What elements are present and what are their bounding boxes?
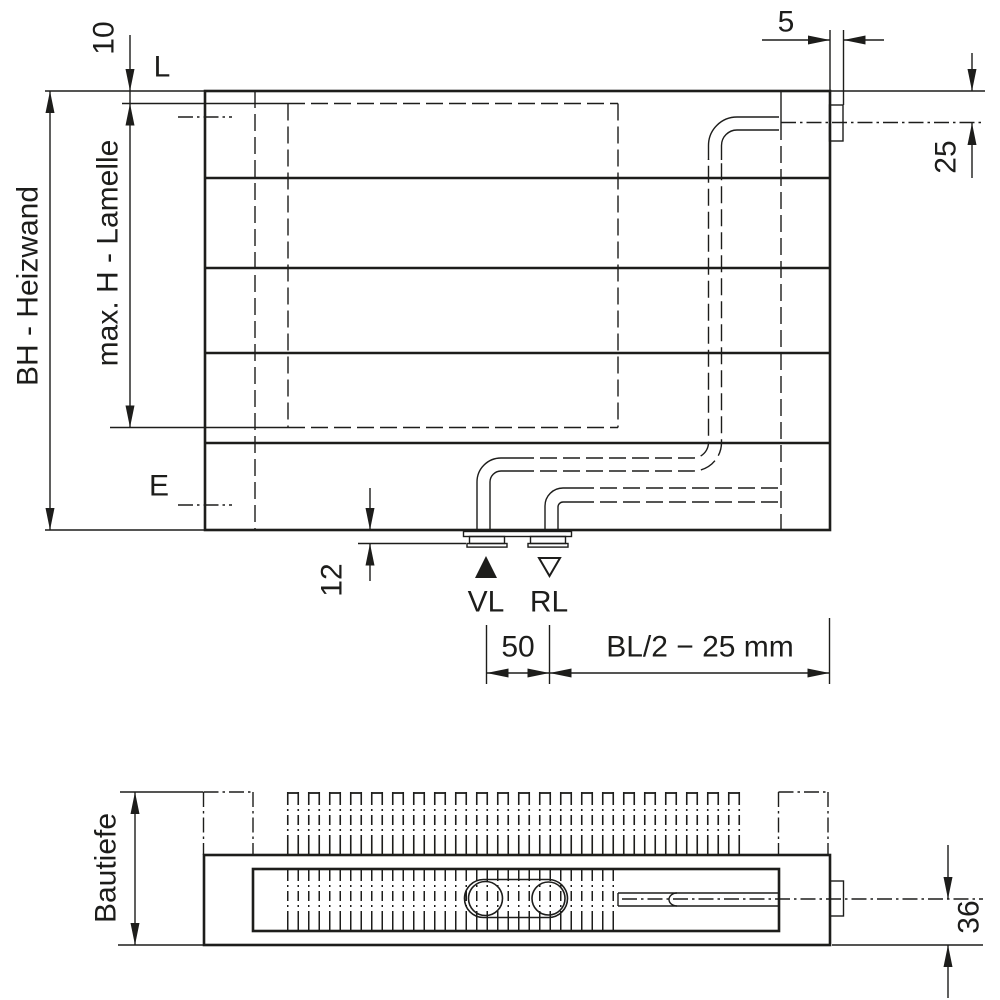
arrowhead	[126, 69, 135, 91]
arrowhead	[550, 669, 572, 678]
arrowhead	[46, 508, 55, 530]
dim-50-label: 50	[501, 631, 534, 664]
dim-5-label: 5	[778, 6, 795, 39]
arrowhead	[944, 877, 953, 899]
radiator-body-outline	[205, 91, 830, 530]
arrowhead	[808, 669, 830, 678]
arrowhead	[844, 36, 866, 45]
arrowhead	[131, 792, 140, 814]
connection-plate	[464, 532, 572, 537]
arrowhead	[808, 36, 830, 45]
drawing-canvas: 10 L BH - Heizwand max. H - Lamelle E 12…	[0, 0, 1000, 1000]
arrowhead	[944, 945, 953, 967]
bottom-view: Bautiefe 36	[90, 792, 986, 998]
convection-fins-top	[285, 792, 747, 855]
rl-connection-stub	[528, 537, 568, 548]
dim-bh-heizwand-label: BH - Heizwand	[12, 186, 45, 386]
connection-e-label: E	[149, 470, 169, 503]
arrowhead	[131, 923, 140, 945]
arrowhead	[126, 406, 135, 428]
arrowhead	[366, 544, 375, 566]
vl-connection-stub	[467, 537, 507, 548]
arrowhead	[126, 104, 135, 126]
dim-max-h-lamelle-label: max. H - Lamelle	[92, 140, 125, 367]
dim-bautiefe-label: Bautiefe	[90, 813, 123, 923]
lamella-max-extent-box	[288, 104, 618, 428]
front-view: 10 L BH - Heizwand max. H - Lamelle E 12…	[12, 6, 986, 685]
dim-36-label: 36	[953, 900, 986, 933]
dim-12-label: 12	[316, 563, 349, 596]
dim-bl2-label: BL/2 − 25 mm	[606, 631, 794, 664]
fin-extent-phantom-right	[779, 792, 829, 855]
water-channel	[618, 893, 983, 906]
rl-return-pipe	[545, 488, 778, 530]
arrowhead	[968, 123, 977, 145]
connection-l-label: L	[154, 51, 171, 84]
vl-flow-symbol	[475, 556, 497, 578]
dim-10-label: 10	[88, 21, 121, 54]
technical-drawing-radiator: 10 L BH - Heizwand max. H - Lamelle E 12…	[0, 0, 1000, 1000]
vl-label: VL	[468, 586, 505, 619]
dim-25-label: 25	[930, 140, 963, 173]
arrowhead	[46, 91, 55, 113]
arrowhead	[528, 669, 550, 678]
rl-flow-symbol	[539, 558, 560, 576]
convection-fins-inner	[285, 869, 619, 931]
fin-extent-phantom-left	[204, 792, 254, 855]
arrowhead	[968, 69, 977, 91]
rl-label: RL	[530, 586, 568, 619]
arrowhead	[366, 508, 375, 530]
arrowhead	[487, 669, 509, 678]
